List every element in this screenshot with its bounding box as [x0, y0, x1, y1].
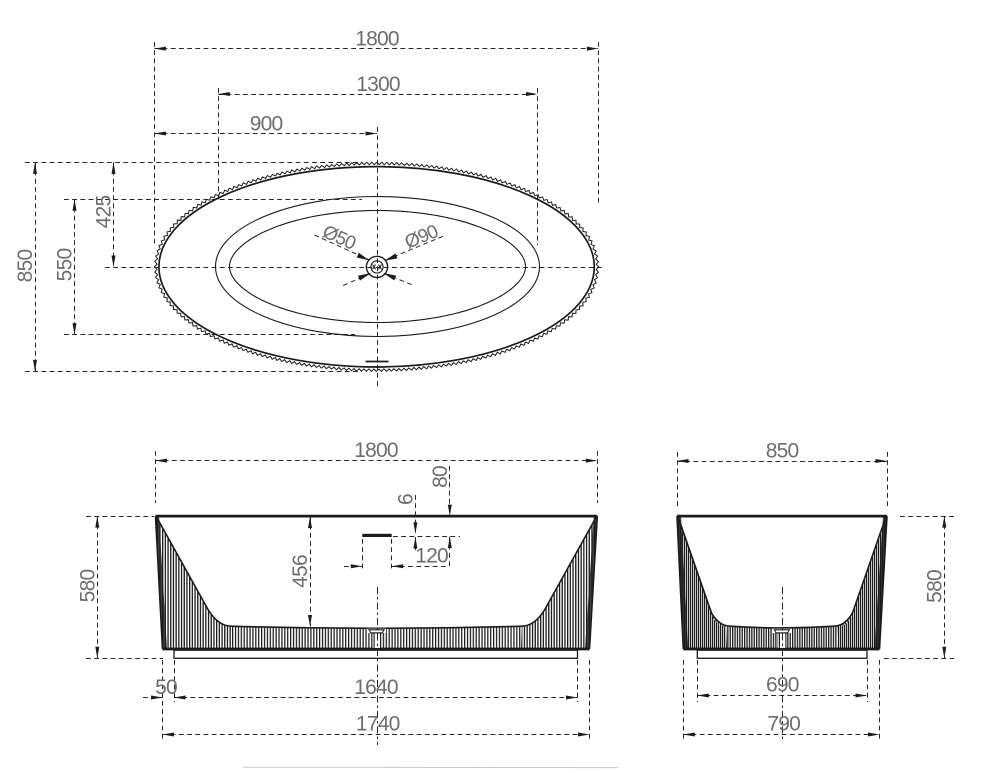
svg-text:50: 50: [155, 676, 177, 699]
svg-text:6: 6: [394, 494, 417, 505]
svg-text:790: 790: [767, 713, 800, 736]
svg-text:580: 580: [76, 570, 99, 603]
svg-text:456: 456: [289, 555, 312, 588]
svg-text:900: 900: [250, 113, 283, 136]
svg-text:Ø90: Ø90: [402, 221, 441, 253]
svg-text:1800: 1800: [354, 439, 398, 462]
svg-text:850: 850: [14, 250, 37, 283]
svg-text:1300: 1300: [356, 73, 400, 96]
svg-text:850: 850: [766, 440, 799, 463]
svg-text:1740: 1740: [356, 713, 400, 736]
svg-text:690: 690: [766, 674, 799, 697]
svg-text:580: 580: [923, 570, 946, 603]
svg-text:Ø50: Ø50: [319, 222, 358, 255]
svg-text:80: 80: [429, 466, 452, 488]
svg-text:425: 425: [93, 196, 116, 229]
svg-text:1640: 1640: [354, 676, 398, 699]
svg-text:550: 550: [54, 249, 77, 282]
svg-text:120: 120: [415, 545, 448, 568]
svg-text:1800: 1800: [355, 28, 399, 51]
